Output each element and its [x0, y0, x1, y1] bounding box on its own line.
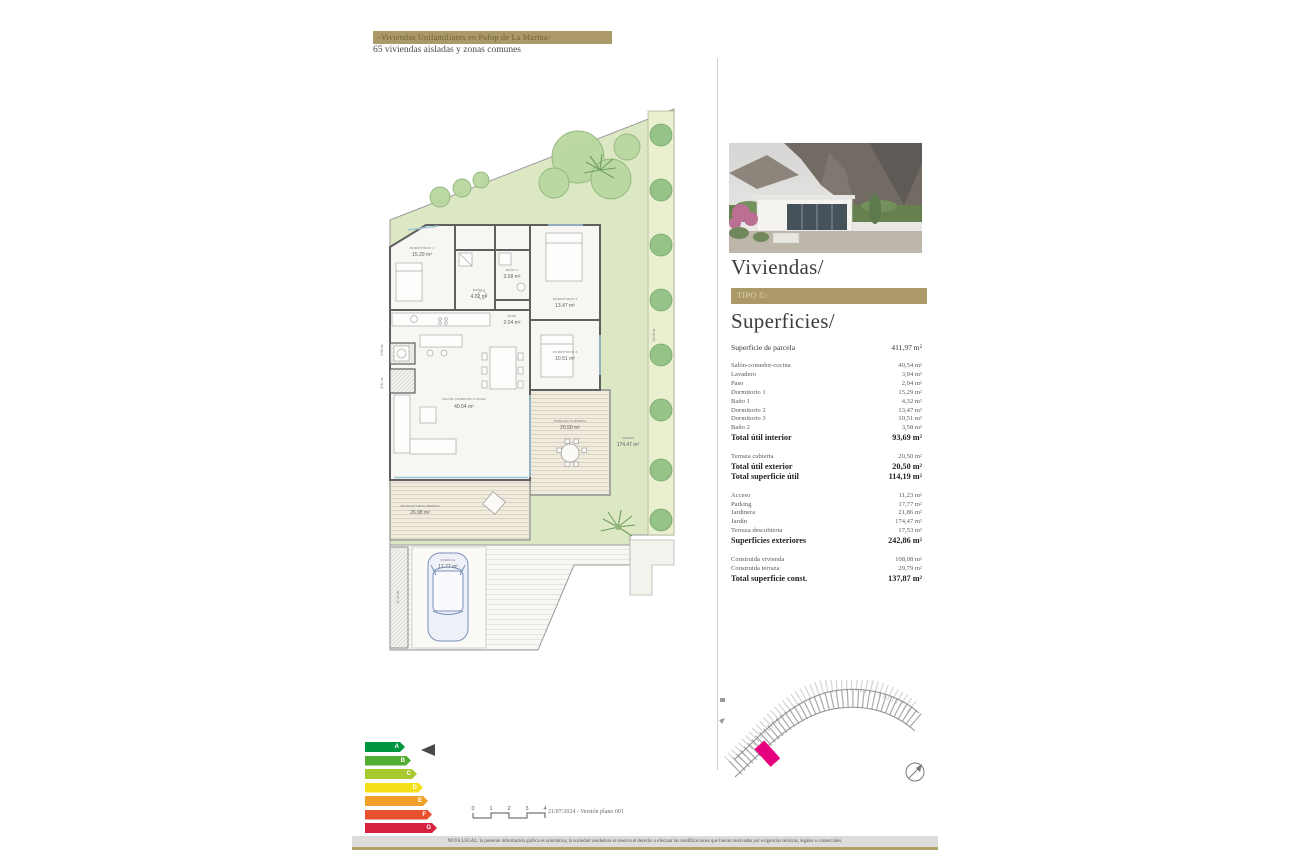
energy-rating-d: D [365, 783, 423, 793]
room-porche [390, 369, 415, 393]
surface-row: Terraza descubierta17,53 m² [731, 527, 922, 536]
svg-text:40.54 m²: 40.54 m² [454, 404, 474, 410]
surface-row: Salón-comedor-cocina40,54 m² [731, 362, 922, 371]
surface-value: 13,47 m² [898, 407, 922, 416]
svg-text:JARDÍN: JARDÍN [622, 436, 634, 440]
floor-plan: 14.08 m² JARDÍN 174.47 m² [378, 95, 700, 665]
energy-letter: E [418, 798, 422, 804]
surface-label: Salón-comedor-cocina [731, 362, 791, 371]
panel-title: Viviendas/ [731, 255, 824, 280]
surface-value: 40,54 m² [898, 362, 922, 371]
surface-row: Total útil exterior20,50 m² [731, 462, 922, 473]
energy-rating-g: G [365, 823, 437, 833]
surface-label: Total superficie const. [731, 574, 807, 585]
surface-row: Terraza cubierta20,50 m² [731, 453, 922, 462]
surfaces-group: Superficie de parcela411,97 m² [731, 342, 922, 353]
planter-strip: 14.08 m² [648, 111, 674, 535]
surface-value: 15,29 m² [898, 389, 922, 398]
surface-row: Total superficie útil114,19 m² [731, 472, 922, 483]
terraza-descubierta: TERRAZA DESCUBIERTA 26.98 m² [390, 480, 530, 540]
surface-value: 29,79 m² [898, 565, 922, 574]
svg-text:4.32 m²: 4.32 m² [471, 294, 488, 300]
surface-label: Total útil exterior [731, 462, 793, 473]
plan-sheet: -Viviendas Unifamiliares en Polop de La … [352, 0, 938, 850]
surface-value: 174,47 m² [895, 518, 922, 527]
north-arrow-icon [906, 763, 924, 781]
svg-text:2.04 m²: 2.04 m² [504, 320, 521, 326]
surface-value: 11,23 m² [899, 492, 922, 501]
surface-value: 10,51 m² [898, 415, 922, 424]
scale-tick: 3 [525, 806, 528, 812]
surface-value: 411,97 m² [891, 342, 922, 353]
energy-pointer-arrow-icon [421, 744, 435, 756]
surface-label: Total superficie útil [731, 472, 799, 483]
vertical-divider [717, 58, 718, 770]
svg-text:13.47 m²: 13.47 m² [555, 303, 575, 309]
garden-steps [630, 540, 674, 595]
svg-text:11.23 m²: 11.23 m² [396, 590, 400, 604]
surface-label: Total útil interior [731, 433, 792, 444]
project-banner: -Viviendas Unifamiliares en Polop de La … [373, 31, 612, 44]
svg-text:17.77 m²: 17.77 m² [438, 564, 458, 570]
photo-tree [869, 194, 881, 224]
scale-tick: 0 [471, 806, 474, 812]
surface-value: 17,77 m² [898, 501, 922, 510]
surface-row: Jardín174,47 m² [731, 518, 922, 527]
surface-value: 20,50 m² [892, 462, 922, 473]
svg-text:BAÑO 2: BAÑO 2 [506, 267, 518, 272]
surface-label: Construida terraza [731, 565, 780, 574]
surface-value: 3,94 m² [902, 371, 922, 380]
surface-row: Superficie de parcela411,97 m² [731, 342, 922, 353]
surface-value: 21,86 m² [898, 509, 922, 518]
jardinera-area-label: 14.08 m² [652, 327, 656, 341]
svg-text:3.58 m²: 3.58 m² [504, 274, 521, 280]
parking-area: PARKING 17.77 m² [412, 547, 486, 648]
surface-row: Baño 23,58 m² [731, 424, 922, 433]
surfaces-title: Superficies/ [731, 309, 835, 334]
villa-photo [729, 143, 922, 253]
terraza-descubierta-label: TERRAZA DESCUBIERTA [400, 504, 440, 508]
surface-value: 108,08 m² [895, 556, 922, 565]
energy-letter: C [407, 771, 411, 777]
surface-label: Terraza cubierta [731, 453, 774, 462]
svg-text:PARKING: PARKING [441, 558, 456, 562]
energy-rating-chart: ABCDEFG [365, 742, 485, 837]
surface-row: Acceso11,23 m² [731, 492, 922, 501]
svg-text:20.50 m²: 20.50 m² [560, 425, 580, 431]
surface-label: Paso [731, 380, 743, 389]
svg-text:SALÓN-COMEDOR-COCINA: SALÓN-COMEDOR-COCINA [442, 396, 487, 401]
energy-letter: A [395, 744, 399, 750]
surface-row: Dormitorio 115,29 m² [731, 389, 922, 398]
surface-label: Baño 2 [731, 424, 750, 433]
project-subtitle: 65 viviendas aisladas y zonas comunes [373, 45, 521, 55]
svg-text:26.98 m²: 26.98 m² [410, 510, 430, 516]
surface-value: 3,58 m² [902, 424, 922, 433]
svg-text:PASO: PASO [508, 314, 517, 318]
energy-rating-c: C [365, 769, 417, 779]
surface-value: 17,53 m² [898, 527, 922, 536]
energy-letter: G [426, 825, 431, 831]
site-plan [715, 680, 940, 792]
surface-row: Paso2,04 m² [731, 380, 922, 389]
surface-value: 114,19 m² [889, 472, 922, 483]
surface-row: Construida terraza29,79 m² [731, 565, 922, 574]
closet-1 [455, 225, 495, 250]
surface-row: Superficies exteriores242,86 m² [731, 536, 922, 547]
surface-label: Dormitorio 2 [731, 407, 766, 416]
scale-tick: 1 [489, 806, 492, 812]
surfaces-table: Superficie de parcela411,97 m²Salón-come… [731, 342, 922, 593]
surface-label: Lavadero [731, 371, 756, 380]
energy-letter: F [422, 812, 426, 818]
surface-label: Acceso [731, 492, 750, 501]
surface-label: Superficies exteriores [731, 536, 806, 547]
surface-value: 20,50 m² [898, 453, 922, 462]
siteplan-legend-marks [719, 698, 725, 724]
surface-value: 2,04 m² [902, 380, 922, 389]
surface-label: Construida vivienda [731, 556, 784, 565]
surface-label: Superficie de parcela [731, 342, 795, 353]
acceso-strip: 11.23 m² [390, 547, 408, 648]
svg-text:DORMITORIO 3: DORMITORIO 3 [553, 350, 578, 354]
scale-bar: 01234 [470, 804, 550, 822]
terraza-cubierta-label: TERRAZA CUBIERTA [554, 419, 588, 423]
surface-row: Construida vivienda108,08 m² [731, 556, 922, 565]
energy-rating-a: A [365, 742, 405, 752]
siteplan-band [735, 689, 919, 777]
surface-label: Dormitorio 1 [731, 389, 766, 398]
svg-text:BAÑO 1: BAÑO 1 [473, 287, 485, 292]
plan-version-text: 21/07/2024 - Versión plano 001 [548, 809, 624, 815]
surface-row: Total útil interior93,69 m² [731, 433, 922, 444]
energy-letter: B [401, 758, 405, 764]
closet-2 [495, 225, 530, 250]
surface-value: 4,32 m² [902, 398, 922, 407]
scale-tick: 2 [507, 806, 510, 812]
surface-row: Total superficie const.137,87 m² [731, 574, 922, 585]
energy-rating-e: E [365, 796, 428, 806]
svg-text:10.51 m²: 10.51 m² [555, 356, 575, 362]
svg-text:15.29 m²: 15.29 m² [412, 252, 432, 258]
surfaces-group: Construida vivienda108,08 m²Construida t… [731, 556, 922, 584]
surface-label: Jardín [731, 518, 747, 527]
type-banner: TIPO G: [731, 288, 927, 304]
surface-label: Parking [731, 501, 752, 510]
svg-text:174.47 m²: 174.47 m² [617, 442, 640, 448]
surfaces-group: Salón-comedor-cocina40,54 m²Lavadero3,94… [731, 362, 922, 444]
svg-text:DORMITORIO 2: DORMITORIO 2 [553, 297, 578, 301]
energy-letter: D [413, 785, 417, 791]
surface-value: 137,87 m² [888, 574, 922, 585]
svg-text:4.51 m²: 4.51 m² [380, 376, 384, 388]
surface-row: Jardinera21,86 m² [731, 509, 922, 518]
energy-rating-f: F [365, 810, 432, 820]
surface-label: Baño 1 [731, 398, 750, 407]
surfaces-group: Terraza cubierta20,50 m²Total útil exter… [731, 453, 922, 483]
surface-row: Dormitorio 310,51 m² [731, 415, 922, 424]
terraza-cubierta: TERRAZA CUBIERTA 20.50 m² [530, 390, 610, 495]
surfaces-group: Acceso11,23 m²Parking17,77 m²Jardinera21… [731, 492, 922, 547]
svg-text:3.94 m²: 3.94 m² [380, 343, 384, 355]
energy-rating-b: B [365, 756, 411, 766]
surface-row: Parking17,77 m² [731, 501, 922, 510]
svg-text:DORMITORIO 1: DORMITORIO 1 [410, 246, 435, 250]
surface-row: Lavadero3,94 m² [731, 371, 922, 380]
surface-row: Baño 14,32 m² [731, 398, 922, 407]
surface-label: Jardinera [731, 509, 755, 518]
surface-value: 242,86 m² [888, 536, 922, 547]
surface-label: Terraza descubierta [731, 527, 782, 536]
surface-row: Dormitorio 213,47 m² [731, 407, 922, 416]
scale-tick: 4 [543, 806, 546, 812]
legal-note: NOTA LEGAL: la presente información gráf… [352, 836, 938, 847]
surface-value: 93,69 m² [892, 433, 922, 444]
surface-label: Dormitorio 3 [731, 415, 766, 424]
